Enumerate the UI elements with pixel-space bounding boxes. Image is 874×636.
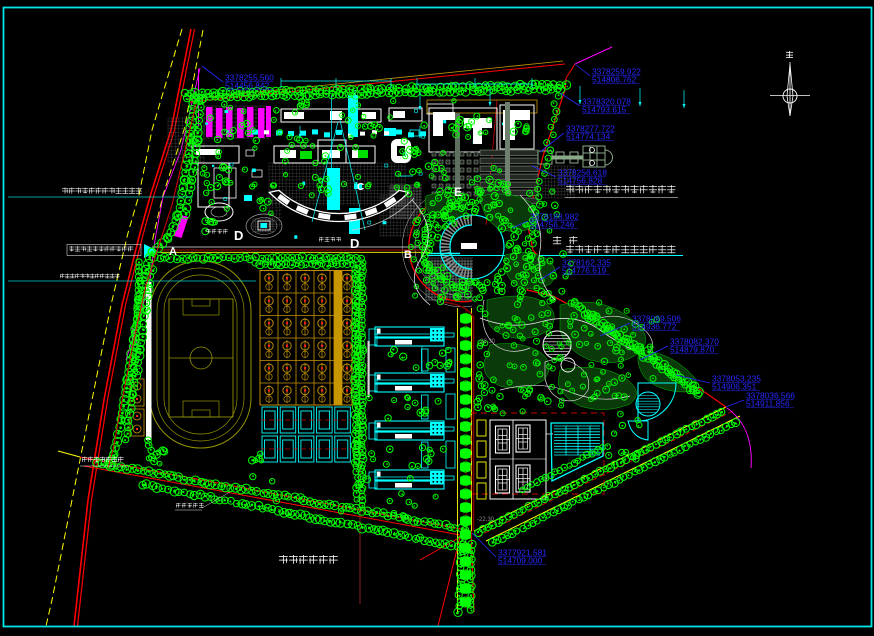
- svg-text:A: A: [169, 246, 177, 258]
- svg-text:D: D: [234, 228, 243, 243]
- svg-text:E: E: [454, 185, 462, 199]
- svg-text:B: B: [404, 249, 412, 261]
- svg-text:22.30: 22.30: [480, 339, 496, 345]
- svg-text:C: C: [357, 182, 364, 193]
- svg-text:D: D: [350, 236, 359, 251]
- svg-text:-22.30: -22.30: [477, 517, 495, 523]
